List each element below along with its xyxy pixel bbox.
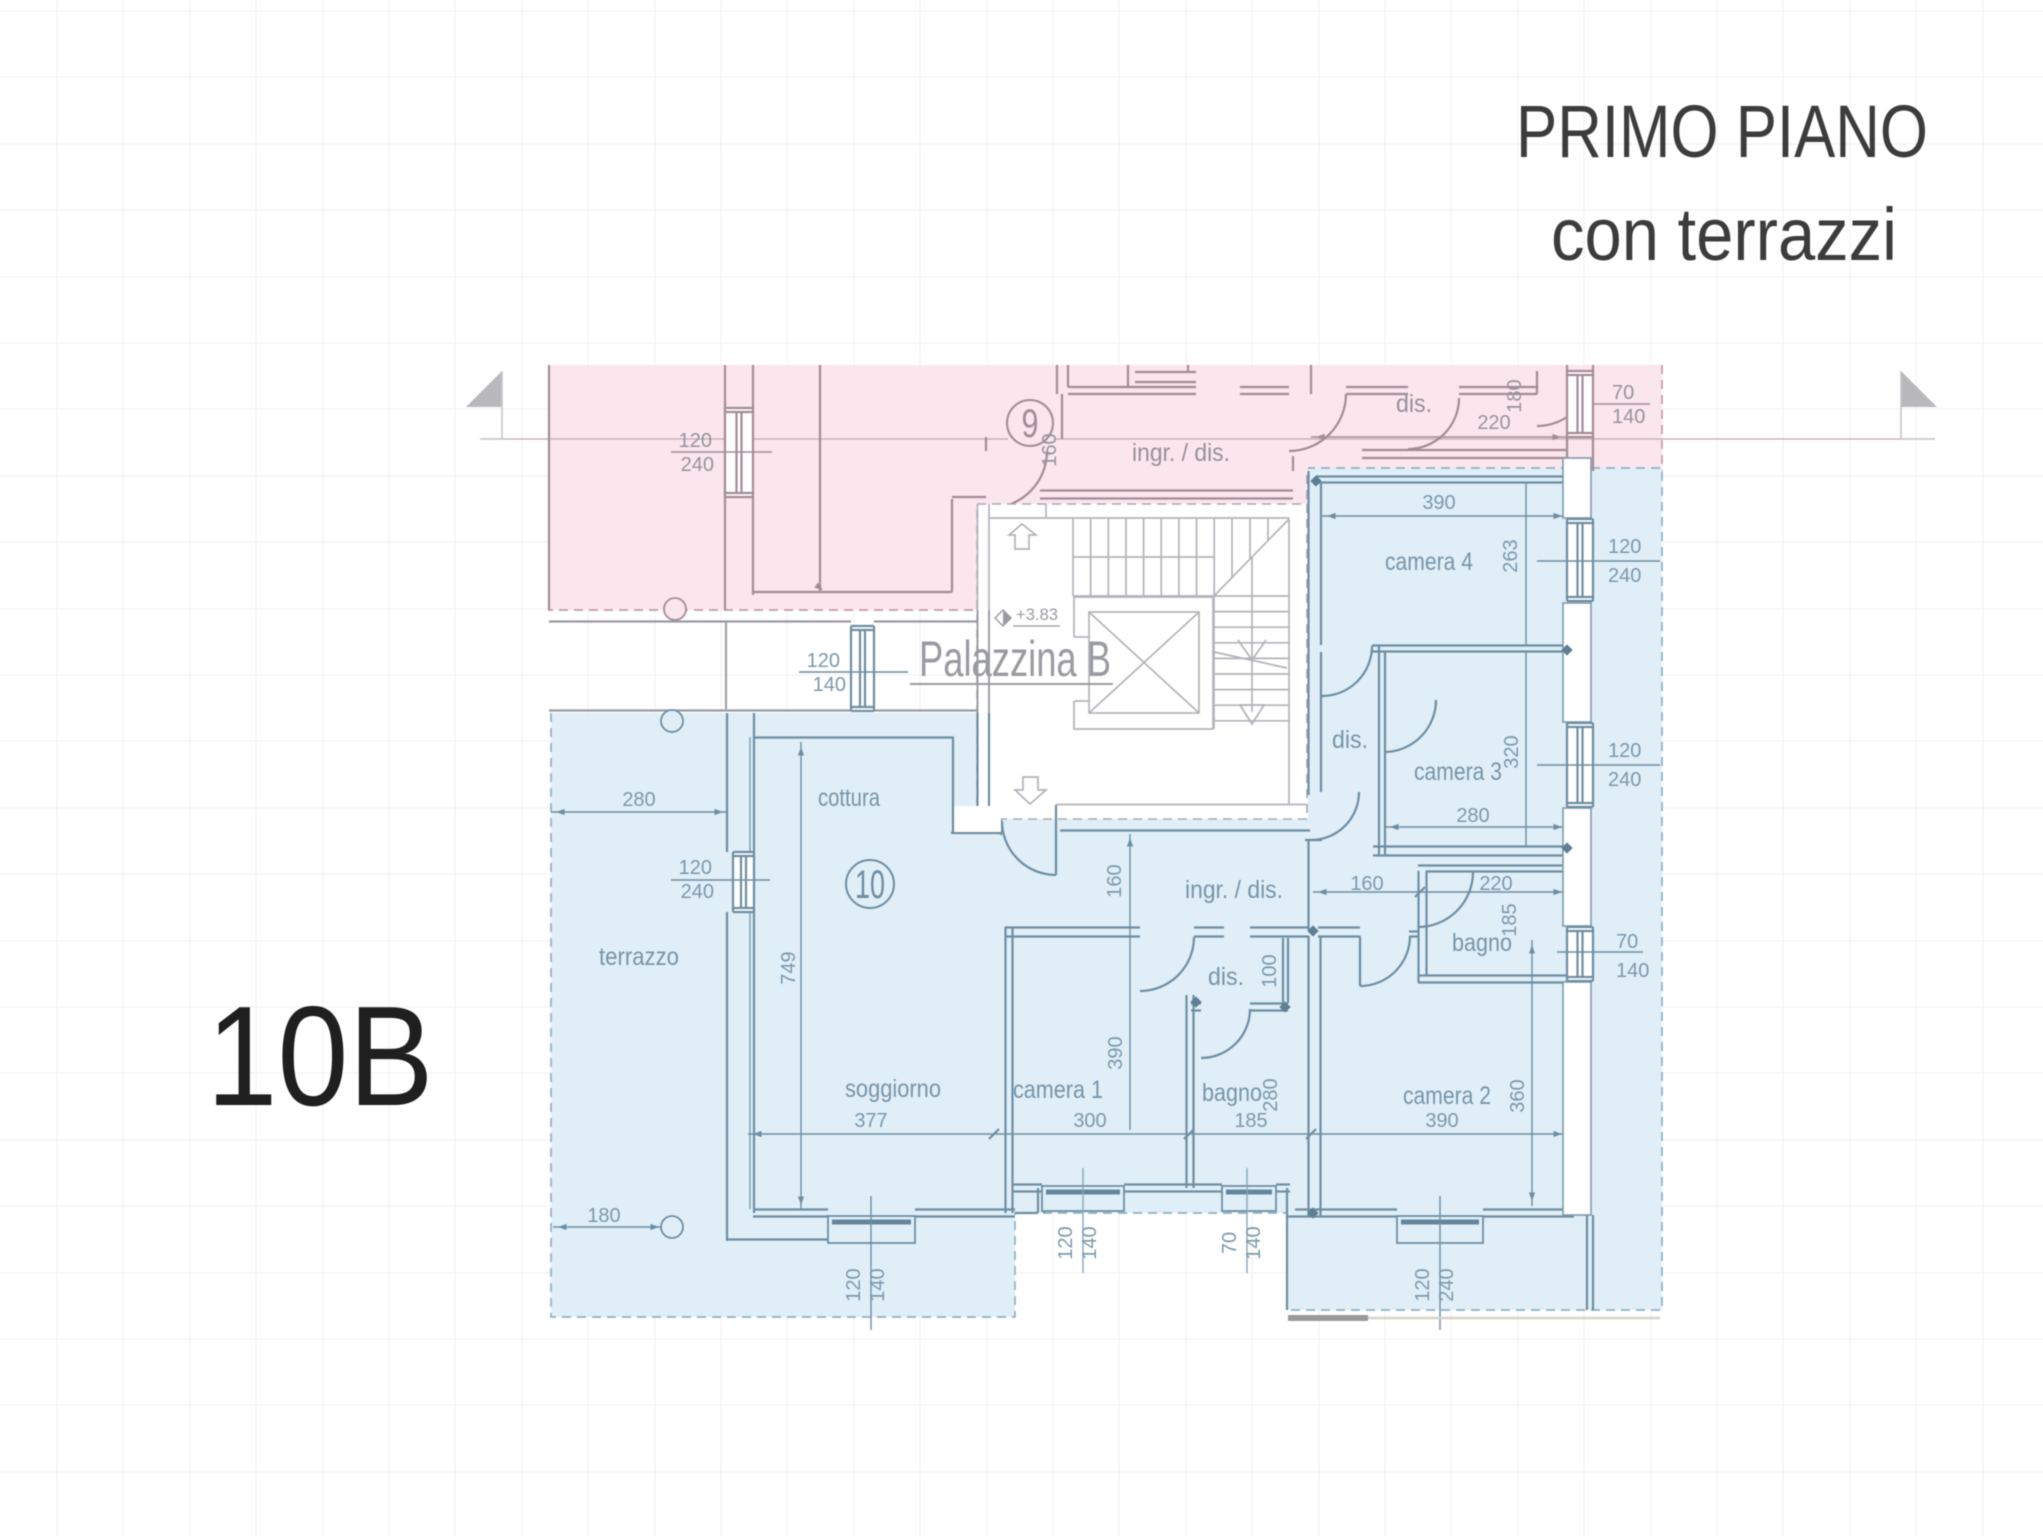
svg-text:240: 240: [1436, 1268, 1458, 1301]
svg-text:70: 70: [1219, 1232, 1241, 1254]
svg-text:100: 100: [1259, 954, 1281, 987]
svg-text:120: 120: [679, 430, 712, 452]
svg-text:ingr. / dis.: ingr. / dis.: [1132, 439, 1230, 467]
svg-text:300: 300: [1073, 1110, 1106, 1132]
svg-text:dis.: dis.: [1396, 390, 1432, 418]
svg-text:soggiorno: soggiorno: [845, 1075, 941, 1103]
svg-text:220: 220: [1477, 412, 1510, 434]
svg-text:377: 377: [854, 1110, 887, 1132]
svg-text:140: 140: [1616, 960, 1649, 982]
svg-text:camera 2: camera 2: [1403, 1082, 1491, 1110]
svg-text:bagno: bagno: [1202, 1079, 1262, 1107]
svg-text:749: 749: [778, 951, 800, 984]
svg-text:9: 9: [1022, 402, 1039, 446]
svg-text:ingr. / dis.: ingr. / dis.: [1185, 876, 1283, 904]
svg-text:280: 280: [622, 789, 655, 811]
svg-text:360: 360: [1507, 1079, 1529, 1112]
svg-text:390: 390: [1425, 1110, 1458, 1132]
svg-text:180: 180: [587, 1205, 620, 1227]
svg-text:10: 10: [855, 863, 885, 907]
svg-text:dis.: dis.: [1208, 963, 1244, 991]
svg-text:con terrazzi: con terrazzi: [1551, 193, 1897, 276]
svg-text:70: 70: [1616, 931, 1638, 953]
svg-text:120: 120: [1055, 1226, 1077, 1259]
svg-text:390: 390: [1422, 492, 1455, 514]
svg-text:PRIMO PIANO: PRIMO PIANO: [1516, 90, 1928, 173]
svg-text:240: 240: [1608, 769, 1641, 791]
svg-text:280: 280: [1260, 1078, 1282, 1111]
svg-text:160: 160: [1104, 864, 1126, 897]
svg-text:185: 185: [1499, 903, 1521, 936]
svg-text:140: 140: [1243, 1226, 1265, 1259]
svg-text:263: 263: [1500, 539, 1522, 572]
svg-text:10B: 10B: [207, 977, 434, 1136]
svg-text:240: 240: [681, 454, 714, 476]
svg-text:120: 120: [843, 1268, 865, 1301]
svg-text:camera 1: camera 1: [1013, 1076, 1103, 1104]
svg-text:280: 280: [1456, 805, 1489, 827]
svg-text:120: 120: [1608, 740, 1641, 762]
svg-text:140: 140: [867, 1268, 889, 1301]
svg-text:120: 120: [1412, 1268, 1434, 1301]
svg-text:185: 185: [1234, 1110, 1267, 1132]
svg-text:camera 4: camera 4: [1385, 548, 1473, 576]
svg-text:240: 240: [1608, 565, 1641, 587]
svg-text:140: 140: [813, 674, 846, 696]
svg-text:320: 320: [1501, 735, 1523, 768]
svg-text:cottura: cottura: [818, 784, 880, 812]
svg-text:180: 180: [1504, 379, 1526, 412]
svg-text:70: 70: [1612, 382, 1634, 404]
svg-text:240: 240: [681, 881, 714, 903]
svg-text:120: 120: [807, 650, 840, 672]
svg-text:120: 120: [679, 857, 712, 879]
svg-text:+3.83: +3.83: [1016, 605, 1058, 624]
svg-text:terrazzo: terrazzo: [599, 943, 679, 971]
svg-text:140: 140: [1612, 406, 1645, 428]
svg-text:Palazzina B: Palazzina B: [919, 631, 1111, 687]
svg-text:120: 120: [1608, 536, 1641, 558]
svg-text:390: 390: [1105, 1036, 1127, 1069]
svg-text:camera 3: camera 3: [1414, 758, 1502, 786]
svg-text:160: 160: [1039, 433, 1061, 466]
svg-text:dis.: dis.: [1332, 726, 1368, 754]
svg-text:140: 140: [1079, 1226, 1101, 1259]
